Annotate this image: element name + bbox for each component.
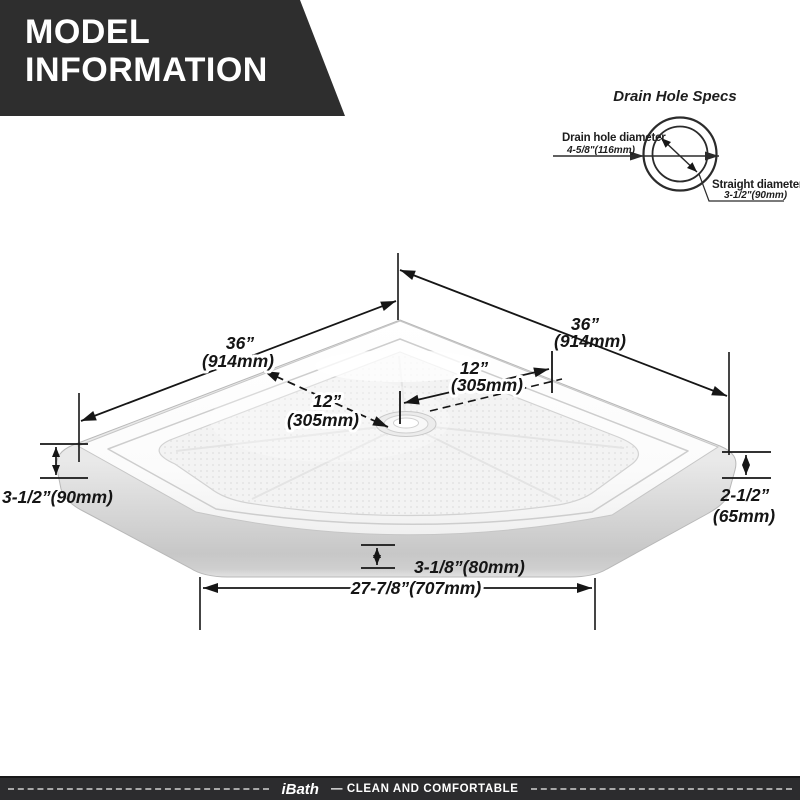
drain-hole-diameter-label: Drain hole diameter [562, 132, 666, 144]
straight-diameter-value: 3-1/2"(90mm) [724, 190, 788, 201]
label-right-height-mm: (65mm) [713, 506, 775, 526]
drain-specs-title: Drain Hole Specs [613, 88, 736, 105]
diagram-svg: 36” (914mm) 36” (914mm) 12” (305mm) 12” … [0, 0, 800, 800]
label-back-right-width-mm: (914mm) [554, 331, 626, 351]
label-apron-height: 3-1/8”(80mm) [414, 557, 525, 577]
brand-tagline: — CLEAN AND COMFORTABLE [331, 783, 519, 795]
drain-hole-diameter-value: 4-5/8"(116mm) [566, 145, 636, 156]
shower-pan-illustration [57, 320, 736, 577]
label-drain-left-in: 12” [313, 391, 341, 411]
drain [376, 412, 436, 437]
label-back-left-width-in: 36” [226, 333, 254, 353]
label-back-left-width-mm: (914mm) [202, 351, 274, 371]
drain-hole-specs: Drain Hole Specs Drain hole diameter 4-5… [553, 88, 800, 201]
footer-dash-right [531, 788, 792, 790]
footer-dash-left [8, 788, 269, 790]
label-drain-left-mm: (305mm) [287, 410, 359, 430]
label-left-height: 3-1/2”(90mm) [2, 487, 113, 507]
label-drain-right-mm: (305mm) [451, 375, 523, 395]
label-front-width: 27-7/8”(707mm) [350, 578, 482, 598]
label-right-height-in: 2-1/2” [720, 485, 770, 505]
straight-diameter-arrow [661, 138, 697, 172]
footer-bar: iBath — CLEAN AND COMFORTABLE [0, 776, 800, 800]
brand-logo: iBath [281, 781, 319, 798]
drain-cap [394, 418, 419, 428]
product-spec-image: MODEL INFORMATION [0, 0, 800, 800]
